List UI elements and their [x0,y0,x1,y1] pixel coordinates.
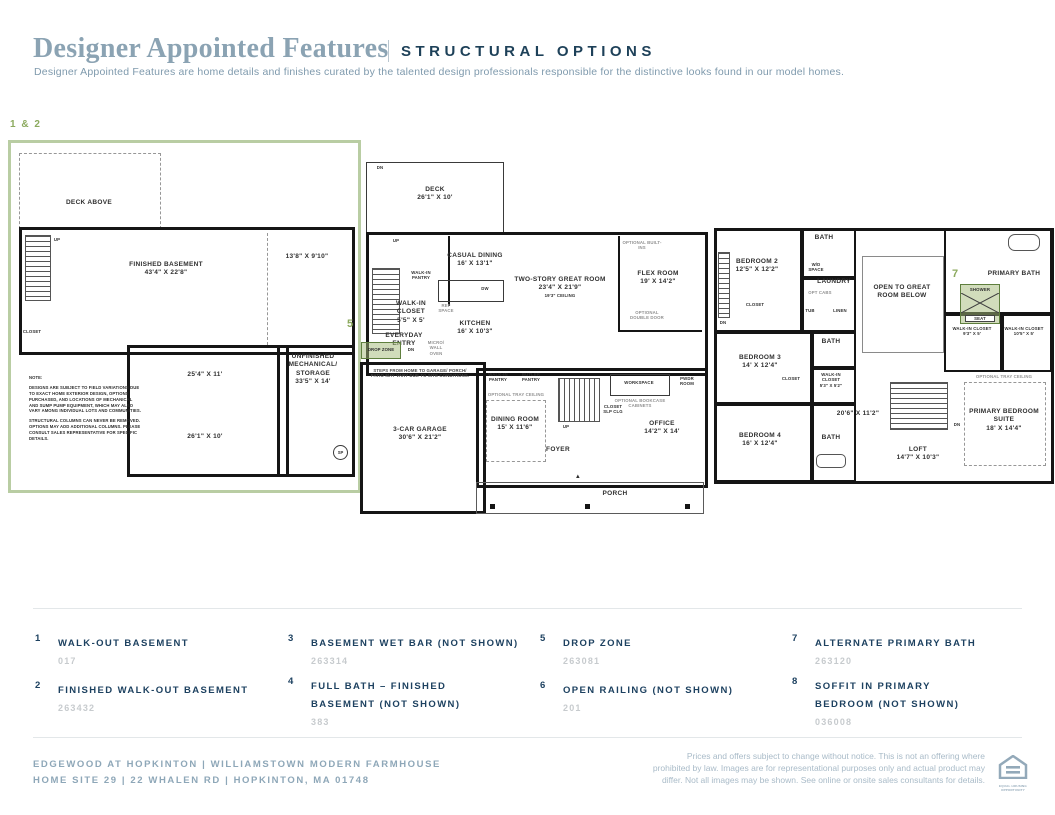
foyer-stairs [558,378,600,422]
open-to-label: OPEN TO GREAT ROOM BELOW [864,284,940,301]
ref-space-label: REF SPACE [436,303,456,314]
basement-room-divider [267,233,268,345]
legend-code: 263432 [58,703,249,713]
bedroom2-dim: 12'5" X 12'2" [720,266,794,274]
primary-suite-label: PRIMARY BEDROOM SUITE 18' X 14'4" [966,408,1042,433]
sump-pump-mark: SP [333,445,348,460]
legend-item-6: 6 OPEN RAILING (NOT SHOWN) 201 [540,680,775,713]
wd-space-label: W/D SPACE [804,262,828,273]
dishwasher-label: DW [478,286,492,291]
callout-primary-bath: 7 [952,268,960,280]
basement-side-dim: 13'8" X 9'10" [269,253,345,261]
stairs-up-label: UP [558,424,574,429]
great-room-dim: 23'4" X 21'9" [510,284,610,292]
basement-note-1: DESIGNS ARE SUBJECT TO FIELD VARIATIONS … [29,385,141,414]
wic1-dim: 5'3" X 5'2" [812,383,850,388]
shower-label: SHOWER [961,287,999,292]
footer-disclaimer: Prices and offers subject to change with… [650,751,985,787]
legend-num: 3 [288,633,311,666]
shower-highlight: SHOWER SEAT [960,284,1000,324]
page-description: Designer Appointed Features are home det… [34,66,844,78]
equal-housing-logo: EQUAL HOUSING OPPORTUNITY [997,755,1029,792]
tray-ceiling-label: OPTIONAL TRAY CEILING [480,392,552,397]
footer-divider [33,737,1022,738]
kitchen-label: KITCHEN 16' X 10'3" [440,320,510,337]
garage-label: 3-CAR GARAGE 30'6" X 21'2" [370,426,470,443]
walk-in-pantry2-label: WALK-IN PANTRY [482,372,514,383]
open-railing-outline [862,256,944,353]
basement-mid-dim: 25'4" X 11' [159,371,251,379]
primary-tray-label: OPTIONAL TRAY CEILING [964,374,1044,379]
wic3-dim: 10'5" X 5' [1004,331,1044,336]
wic3-outline [1000,312,1052,372]
wic3-label: WALK-IN CLOSET 10'5" X 5' [1004,326,1044,337]
walk-in-closet-label: WALK-IN CLOSET 5'5" X 5' [388,300,434,325]
opt-cabs-label: OPT CABS [808,290,832,295]
bedroom2-name: BEDROOM 2 [736,258,778,265]
legend-item-4: 4 FULL BATH – FINISHED BASEMENT (NOT SHO… [288,676,506,727]
flex-room-name: FLEX ROOM [637,270,678,277]
bedroom4-label: BEDROOM 4 16' X 12'4" [720,432,800,449]
wic2-dim: 9'3" X 5' [948,331,996,336]
garage-name: 3-CAR GARAGE [393,426,447,433]
bedroom2-closet-label: CLOSET [740,302,770,307]
stairs-dn-label: DN [950,422,964,427]
walk-in-closet-dim: 5'5" X 5' [388,317,434,325]
basement-closet-label: CLOSET [19,329,45,334]
bath3-label: BATH [812,434,850,442]
legend-code: 263314 [311,656,519,666]
legend-title: ALTERNATE PRIMARY BATH [815,638,976,649]
basement-note: NOTE: DESIGNS ARE SUBJECT TO FIELD VARIA… [29,375,141,446]
legend-num: 2 [35,680,58,713]
shower-glass-mark [961,293,999,313]
office-label: OFFICE 14'2" X 14' [630,420,694,437]
loft-dim: 14'7" X 10'3" [888,454,948,462]
legend-code: 201 [563,703,733,713]
bath2-label: BATH [812,338,850,346]
primary-suite-name: PRIMARY BEDROOM SUITE [969,408,1039,423]
legend-num: 8 [792,676,815,727]
left-dn-label: DN [716,320,730,325]
wic1-label: WALK-IN CLOSET 5'3" X 5'2" [812,372,850,388]
flex-room-label: FLEX ROOM 19' X 14'2" [618,270,698,287]
butler-pantry-label: BUTLER PANTRY [516,372,546,383]
micro-oven-label: MICRO/ WALL OVEN [424,340,448,356]
wic3-name: WALK-IN CLOSET [1004,326,1043,331]
dining-room-name: DINING ROOM [491,416,539,423]
footer-site: HOME SITE 29 | 22 WHALEN RD | HOPKINTON,… [33,773,441,789]
legend-title: WALK-OUT BASEMENT [58,638,189,649]
optional-builtins-label: OPTIONAL BUILT-INS [622,240,662,251]
legend-code: 036008 [815,717,992,727]
casual-dining-name: CASUAL DINING [447,252,502,259]
second-floor-stairs [890,382,948,430]
office-dim: 14'2" X 14' [630,428,694,436]
basement-stairs [25,235,51,301]
walk-in-closet-name: WALK-IN CLOSET [396,300,426,315]
legend-title: SOFFIT IN PRIMARY BEDROOM (NOT SHOWN) [815,681,959,710]
great-room-ceiling: 19'3" CEILING [510,293,610,298]
flex-room-dim: 19' X 14'2" [618,278,698,286]
porch-post [685,504,690,509]
legend-code: 263120 [815,656,976,666]
bedroom2-label: BEDROOM 2 12'5" X 12'2" [720,258,794,275]
legend-code: 263081 [563,656,632,666]
office-name: OFFICE [649,420,675,427]
steps-note: STEPS FROM HOME TO GARAGE/ PORCH/ PATIO … [370,368,470,379]
legend-item-7: 7 ALTERNATE PRIMARY BATH 263120 [792,633,1027,666]
legend-num: 4 [288,676,311,727]
tub-icon [1008,234,1040,251]
casual-dining-dim: 16' X 13'1" [430,260,520,268]
closet-slp-label: CLOSET SLP CLG [600,404,626,415]
first-floor-up-label: UP [388,238,404,243]
legend-title: OPEN RAILING (NOT SHOWN) [563,685,733,696]
footer-community: EDGEWOOD AT HOPKINTON | WILLIAMSTOWN MOD… [33,757,441,773]
walk-in-pantry-label: WALK-IN PANTRY [402,270,440,281]
drop-zone-label: DROP ZONE [362,347,400,352]
upper-hall-dim: 20'6" X 11'2" [828,410,888,418]
legend-title: BASEMENT WET BAR (NOT SHOWN) [311,638,519,649]
basement-lower-outline [127,345,289,477]
porch-label: PORCH [590,490,640,498]
legend-item-3: 3 BASEMENT WET BAR (NOT SHOWN) 263314 [288,633,523,666]
title-divider [388,40,389,62]
basement-up-label: UP [49,237,65,242]
deck-above-label: DECK ABOVE [39,199,139,207]
legend-item-1: 1 WALK-OUT BASEMENT 017 [35,633,270,666]
linen-label: LINEN [830,308,850,313]
entry-dn-label: DN [404,347,418,352]
shower-seat-label: SEAT [965,315,995,322]
legend-num: 5 [540,633,563,666]
optional-double-door-label: OPTIONAL DOUBLE DOOR [626,310,668,321]
dining-room-label: DINING ROOM 15' X 11'6" [484,416,546,433]
page-title: Designer Appointed Features [33,33,389,65]
legend-title: FULL BATH – FINISHED BASEMENT (NOT SHOWN… [311,681,460,710]
bedroom3-label: BEDROOM 3 14' X 12'4" [720,354,800,371]
pwdr-room-label: PWDR ROOM [674,376,700,387]
basement-plan: DECK ABOVE UP CLOSET FINISHED BASEMENT 4… [8,140,361,493]
tub-icon [816,454,846,468]
primary-bath-label: PRIMARY BATH [984,270,1044,278]
finished-basement-label: FINISHED BASEMENT 43'4" X 22'8" [101,261,231,278]
loft-label: LOFT 14'7" X 10'3" [888,446,948,463]
bedroom4-dim: 16' X 12'4" [720,440,800,448]
wic1-name: WALK-IN CLOSET [821,372,840,382]
legend-num: 6 [540,680,563,713]
legend-num: 7 [792,633,815,666]
legend-item-8: 8 SOFFIT IN PRIMARY BEDROOM (NOT SHOWN) … [792,676,992,727]
legend-divider [33,608,1022,609]
workspace-label: WORKSPACE [612,380,666,385]
kitchen-dim: 16' X 10'3" [440,328,510,336]
bedroom3-dim: 14' X 12'4" [720,362,800,370]
great-room-name: TWO-STORY GREAT ROOM [514,276,605,283]
front-door-mark: ▲ [572,474,584,482]
porch-post [490,504,495,509]
bedroom3-closet-label: CLOSET [776,376,806,381]
garage-dim: 30'6" X 21'2" [370,434,470,442]
dining-room-dim: 15' X 11'6" [484,424,546,432]
legend-title: DROP ZONE [563,638,632,649]
basement-deck-outline [19,153,161,229]
wic2-name: WALK-IN CLOSET [952,326,991,331]
legend-title: FINISHED WALK-OUT BASEMENT [58,685,249,696]
deck-label: DECK 26'1" X 10' [390,186,480,203]
deck-name: DECK [425,186,445,193]
kitchen-name: KITCHEN [460,320,491,327]
bath1-label: BATH [806,234,842,242]
basement-bottom-dim: 26'1" X 10' [159,433,251,441]
basement-note-2: STRUCTURAL COLUMNS CAN NEVER BE REMOVED.… [29,418,141,442]
foyer-label: FOYER [536,446,580,454]
footer-community-block: EDGEWOOD AT HOPKINTON | WILLIAMSTOWN MOD… [33,757,441,788]
tub-label: TUB [802,308,818,313]
callout-drop-zone: 5 [347,318,355,330]
unfinished-storage-name: UNFINISHED MECHANICAL/ STORAGE [289,353,338,377]
bedroom4-name: BEDROOM 4 [739,432,781,439]
legend-code: 383 [311,717,506,727]
bedroom3-name: BEDROOM 3 [739,354,781,361]
porch-post [585,504,590,509]
bath2-outline [810,330,856,370]
deck-dim: 26'1" X 10' [390,194,480,202]
unfinished-storage-label: UNFINISHED MECHANICAL/ STORAGE 33'5" X 1… [281,353,345,387]
casual-dining-label: CASUAL DINING 16' X 13'1" [430,252,520,269]
loft-name: LOFT [909,446,927,453]
basement-main-outline [19,227,355,355]
primary-suite-dim: 18' X 14'4" [966,425,1042,433]
unfinished-storage-dim: 33'5" X 14' [281,378,345,386]
deck-dn-label: DN [372,165,388,170]
legend-code: 017 [58,656,189,666]
flyer-page: Designer Appointed Features STRUCTURAL O… [0,0,1055,815]
kitchen-island [438,280,504,302]
legend-num: 1 [35,633,58,666]
finished-basement-name: FINISHED BASEMENT [129,261,203,268]
callout-basement: 1 & 2 [10,119,41,130]
legend-item-2: 2 FINISHED WALK-OUT BASEMENT 263432 [35,680,270,713]
equal-housing-label: EQUAL HOUSING OPPORTUNITY [997,785,1029,792]
flex-room-wall-2 [618,330,702,332]
equal-housing-icon [998,755,1028,779]
finished-basement-dim: 43'4" X 22'8" [101,269,231,277]
first-floor-plan: DN DECK 26'1" X 10' UP DW WALK-IN PANTRY… [360,150,708,522]
second-floor-plan: DN DN BEDROOM 2 12'5" X 12'2" CLOSET BAT… [712,226,1052,480]
page-subtitle-tag: STRUCTURAL OPTIONS [401,43,656,60]
drop-zone-highlight: DROP ZONE [361,342,401,359]
legend-item-5: 5 DROP ZONE 263081 [540,633,775,666]
wic2-label: WALK-IN CLOSET 9'3" X 5' [948,326,996,337]
laundry-label: LAUNDRY [816,278,852,286]
basement-note-title: NOTE: [29,375,141,381]
great-room-label: TWO-STORY GREAT ROOM 23'4" X 21'9" 19'3"… [510,276,610,298]
